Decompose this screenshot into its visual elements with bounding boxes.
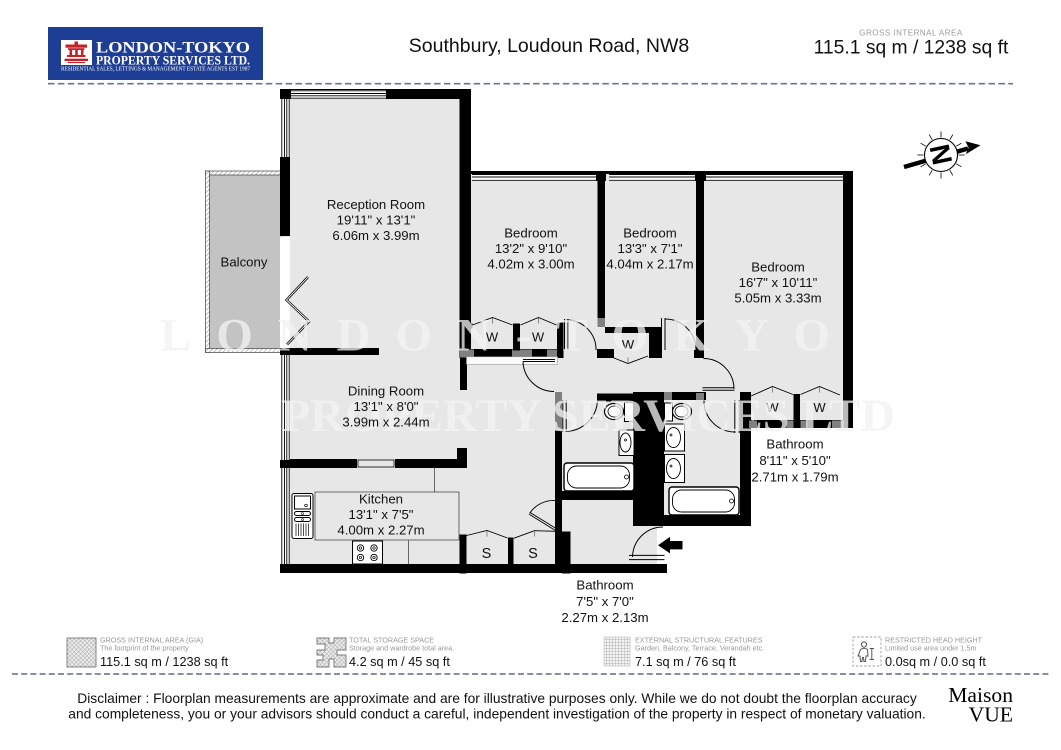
svg-text:0.0sq m / 0.0 sq ft: 0.0sq m / 0.0 sq ft bbox=[885, 655, 986, 669]
svg-text:13'2" x 9'10": 13'2" x 9'10" bbox=[495, 241, 568, 256]
svg-text:115.1 sq m / 1238 sq ft: 115.1 sq m / 1238 sq ft bbox=[100, 655, 229, 669]
svg-text:Balcony: Balcony bbox=[221, 255, 268, 270]
svg-text:Bathroom: Bathroom bbox=[766, 437, 823, 452]
svg-text:7'5" x 7'0": 7'5" x 7'0" bbox=[576, 594, 634, 609]
svg-text:Southbury, Loudoun Road, NW8: Southbury, Loudoun Road, NW8 bbox=[409, 35, 689, 57]
svg-text:16'7" x 10'11": 16'7" x 10'11" bbox=[739, 275, 818, 290]
svg-text:4.04m x 2.17m: 4.04m x 2.17m bbox=[606, 257, 693, 272]
svg-text:Limited use area under 1.5m: Limited use area under 1.5m bbox=[885, 644, 977, 653]
svg-text:Disclaimer : Floorplan measure: Disclaimer : Floorplan measurements are … bbox=[77, 691, 917, 706]
svg-text:3.99m x 2.44m: 3.99m x 2.44m bbox=[342, 415, 429, 430]
svg-text:4.00m x 2.27m: 4.00m x 2.27m bbox=[337, 523, 424, 538]
svg-text:Garden, Balcony, Terrace, Vera: Garden, Balcony, Terrace, Verandah etc. bbox=[635, 644, 764, 653]
svg-text:Bedroom: Bedroom bbox=[504, 226, 558, 241]
svg-text:The footprint of the property: The footprint of the property bbox=[100, 644, 189, 653]
svg-text:GROSS INTERNAL AREA: GROSS INTERNAL AREA bbox=[859, 29, 963, 38]
svg-text:13'1" x 7'5": 13'1" x 7'5" bbox=[349, 507, 414, 522]
svg-text:Storage and wardrobe total are: Storage and wardrobe total area. bbox=[349, 644, 454, 653]
svg-text:19'11" x 13'1": 19'11" x 13'1" bbox=[337, 213, 416, 228]
svg-text:4.2 sq m / 45 sq ft: 4.2 sq m / 45 sq ft bbox=[349, 655, 450, 669]
svg-text:2.27m x 2.13m: 2.27m x 2.13m bbox=[561, 610, 648, 625]
svg-text:8'11" x 5'10": 8'11" x 5'10" bbox=[759, 453, 831, 468]
svg-text:VUE: VUE bbox=[969, 703, 1013, 727]
svg-text:5.05m x 3.33m: 5.05m x 3.33m bbox=[734, 291, 821, 306]
svg-text:Bathroom: Bathroom bbox=[576, 578, 633, 593]
svg-text:4.02m x 3.00m: 4.02m x 3.00m bbox=[487, 257, 574, 272]
svg-text:13'1" x 8'0": 13'1" x 8'0" bbox=[354, 399, 419, 414]
svg-text:115.1 sq m / 1238 sq ft: 115.1 sq m / 1238 sq ft bbox=[814, 38, 1009, 59]
svg-text:S: S bbox=[528, 546, 538, 562]
svg-text:W: W bbox=[532, 330, 545, 345]
svg-text:Reception Room: Reception Room bbox=[327, 197, 425, 212]
svg-text:13'3" x 7'1": 13'3" x 7'1" bbox=[618, 241, 683, 256]
svg-text:Kitchen: Kitchen bbox=[359, 492, 403, 507]
svg-text:6.06m x 3.99m: 6.06m x 3.99m bbox=[332, 228, 419, 243]
svg-text:RESIDENTIAL SALES, LETTINGS &: RESIDENTIAL SALES, LETTINGS & MANAGEMENT… bbox=[61, 66, 250, 73]
svg-text:Bedroom: Bedroom bbox=[751, 260, 805, 275]
svg-text:S: S bbox=[482, 546, 492, 562]
svg-text:and completeness, you or your: and completeness, you or your advisors s… bbox=[68, 707, 925, 722]
svg-text:2.71m x 1.79m: 2.71m x 1.79m bbox=[751, 470, 838, 485]
svg-text:7.1 sq m / 76 sq ft: 7.1 sq m / 76 sq ft bbox=[635, 655, 736, 669]
svg-text:Bedroom: Bedroom bbox=[623, 226, 677, 241]
svg-text:Dining Room: Dining Room bbox=[348, 384, 424, 399]
